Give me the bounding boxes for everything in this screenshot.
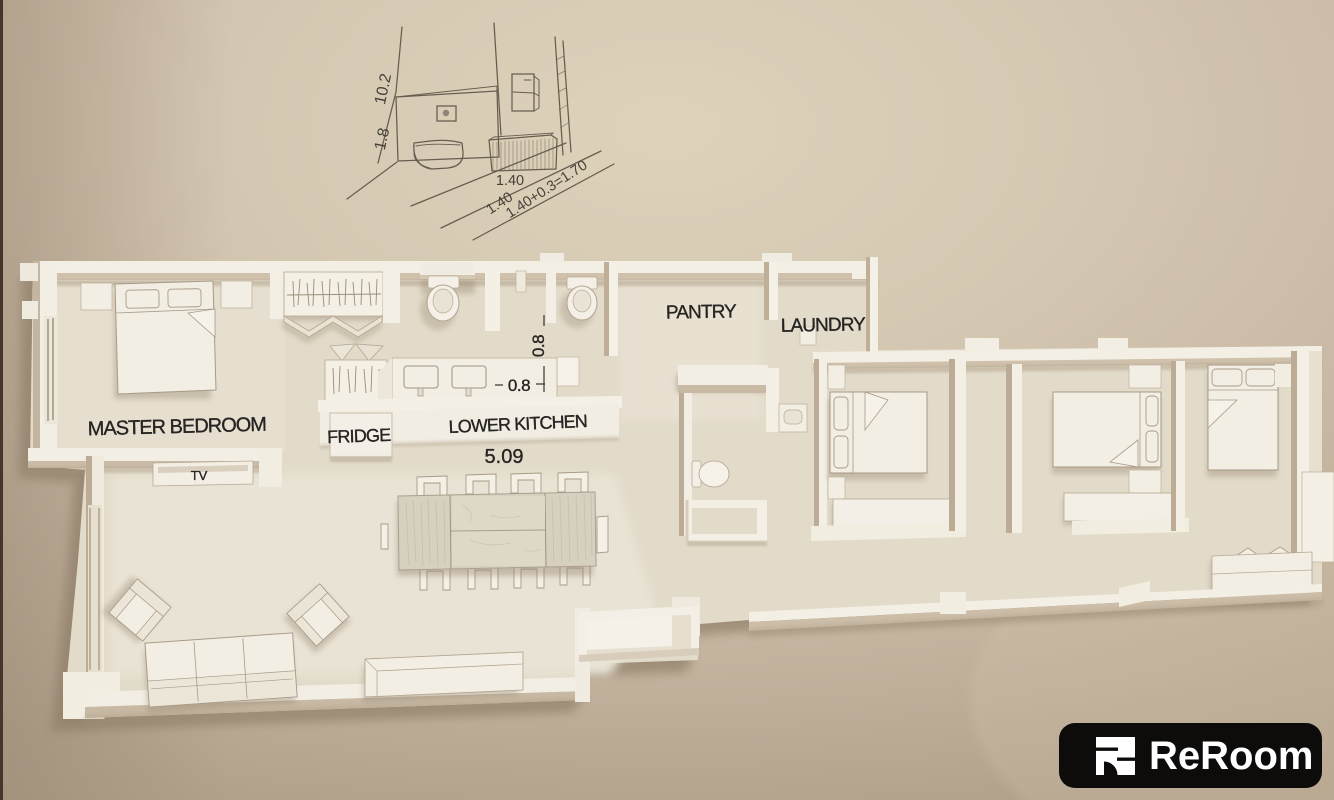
svg-text:5.09: 5.09	[485, 446, 524, 468]
svg-text:MASTER BEDROOM: MASTER BEDROOM	[87, 414, 266, 441]
svg-text:0.8: 0.8	[529, 335, 548, 357]
svg-text:LAUNDRY: LAUNDRY	[781, 314, 867, 336]
svg-text:ReRoom: ReRoom	[1149, 734, 1313, 778]
svg-text:TV: TV	[191, 468, 208, 483]
svg-text:FRIDGE: FRIDGE	[327, 425, 392, 447]
svg-text:PANTRY: PANTRY	[666, 301, 737, 323]
svg-text:0.8: 0.8	[508, 376, 530, 395]
svg-text:1.40: 1.40	[496, 173, 524, 189]
